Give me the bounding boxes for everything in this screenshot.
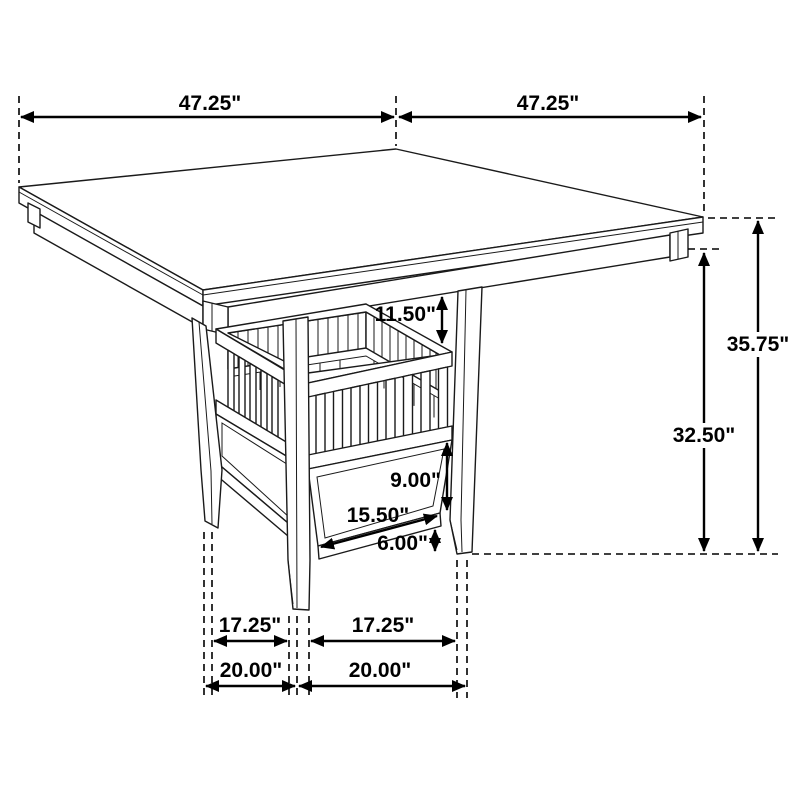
dim-label-panel-height: 9.00" [390,469,441,492]
leg-right [450,287,482,554]
dim-label-foot-gap-left: 17.25" [219,614,282,637]
dim-foot-gap-left: 17.25" [214,614,287,641]
dim-floor-clearance: 6.00" [377,530,435,555]
dim-label-underside-height: 32.50" [673,424,736,447]
dim-top-width-right: 47.25" [399,92,701,117]
dim-foot-gap-right: 17.25" [311,614,455,641]
dim-underside-height: 32.50" [667,253,741,551]
dim-overall-height: 35.75" [721,221,795,551]
dim-label-width-right: 47.25" [517,92,580,115]
dim-label-foot-span-left: 20.00" [220,659,283,682]
dim-label-top-to-shelf: 11.50" [375,303,436,326]
apron-corner-block-right [670,229,688,261]
dim-label-foot-span-right: 20.00" [349,659,412,682]
table-dimension-drawing: 47.25" 47.25" 35.75" 32.50" 11.50" 9.00" [0,0,800,800]
dim-foot-span-left: 20.00" [206,659,295,686]
table-line-art [19,149,703,610]
dim-label-width-left: 47.25" [179,92,242,115]
dim-label-floor-clearance: 6.00" [377,532,428,555]
dim-label-overall-height: 35.75" [727,333,790,356]
dim-foot-span-right: 20.00" [299,659,465,686]
dimension-diagram: 47.25" 47.25" 35.75" 32.50" 11.50" 9.00" [0,0,800,800]
dim-top-width-left: 47.25" [21,92,394,117]
dim-label-foot-gap-right: 17.25" [352,614,415,637]
dim-label-panel-width: 15.50" [347,504,410,527]
